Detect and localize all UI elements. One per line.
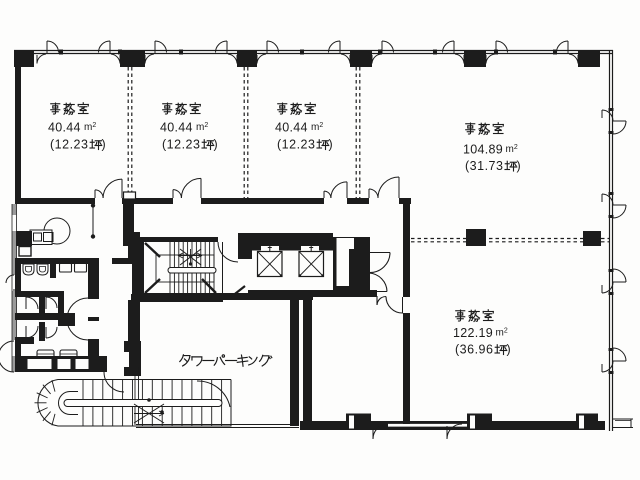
svg-text:(12.23: (12.23: [277, 138, 315, 152]
svg-text:): ): [329, 138, 333, 152]
svg-text:122.19: 122.19: [453, 326, 493, 340]
svg-text:(31.73: (31.73: [465, 159, 503, 173]
svg-text:(36.96: (36.96: [455, 343, 493, 357]
svg-text:): ): [102, 138, 106, 152]
svg-text:40.44: 40.44: [160, 121, 193, 135]
svg-text:(12.23: (12.23: [50, 138, 88, 152]
svg-text:104.89: 104.89: [463, 143, 503, 157]
svg-text:40.44: 40.44: [48, 121, 81, 135]
svg-text:40.44: 40.44: [275, 121, 308, 135]
svg-text:): ): [517, 159, 521, 173]
svg-text:): ): [214, 138, 218, 152]
svg-text:): ): [507, 343, 511, 357]
svg-text:(12.23: (12.23: [162, 138, 200, 152]
